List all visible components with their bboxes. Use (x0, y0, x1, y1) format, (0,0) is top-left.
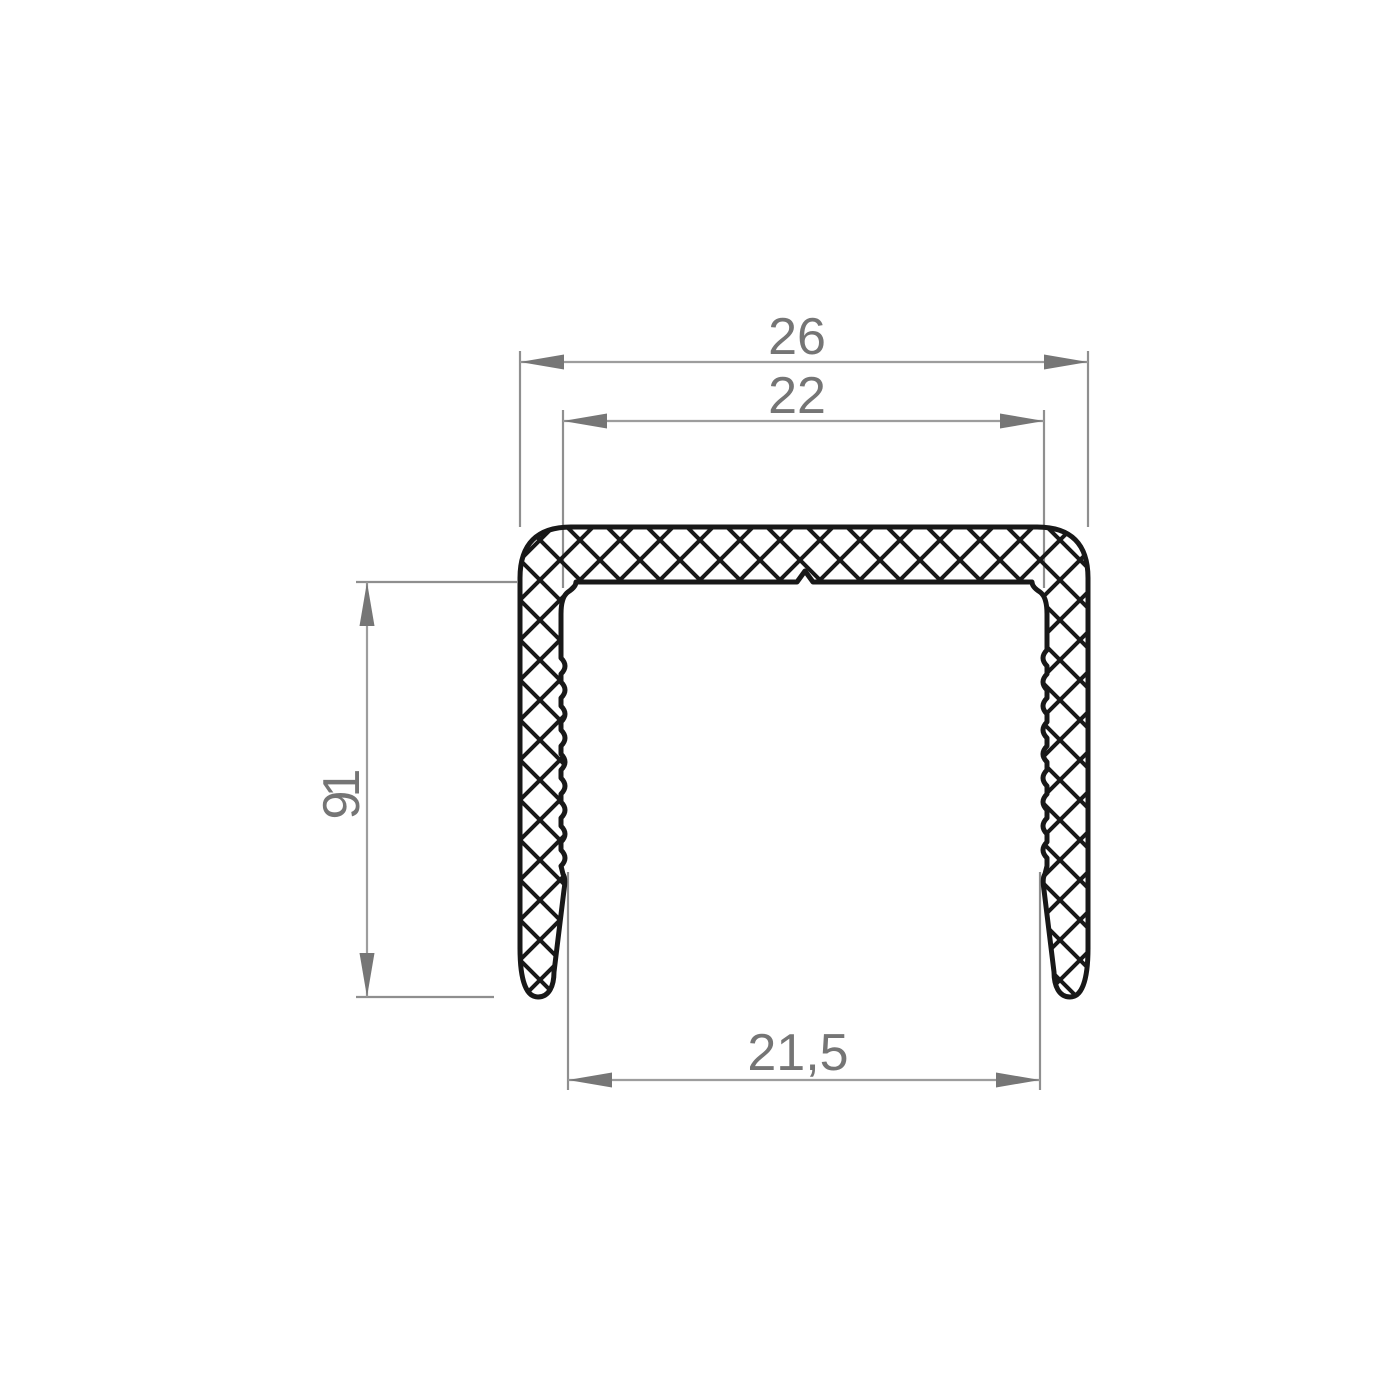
dim-label-height: 19 (322, 772, 362, 816)
arrow-outer-width-right (1044, 355, 1088, 370)
extension-lines (356, 351, 1088, 1090)
arrow-height-top (360, 582, 375, 626)
arrow-bottom-width-left (568, 1073, 612, 1088)
dim-label-inner-width: 22 (768, 367, 826, 425)
dimension-labels: 26 22 21,5 (747, 308, 848, 1082)
profile-outline (520, 527, 1088, 997)
arrow-inner-width-right (1000, 414, 1044, 429)
arrow-outer-width-left (520, 355, 564, 370)
arrow-inner-width-left (563, 414, 607, 429)
dim-label-bottom-width: 21,5 (747, 1024, 848, 1082)
drawing-canvas: 26 22 21,5 19 (0, 0, 1400, 1400)
technical-drawing: 26 22 21,5 (0, 0, 1400, 1400)
dimension-lines (367, 362, 1088, 1080)
arrow-bottom-width-right (996, 1073, 1040, 1088)
dimension-arrows (360, 355, 1089, 1088)
arrow-height-bottom (360, 953, 375, 997)
dim-label-outer-width: 26 (768, 308, 826, 366)
